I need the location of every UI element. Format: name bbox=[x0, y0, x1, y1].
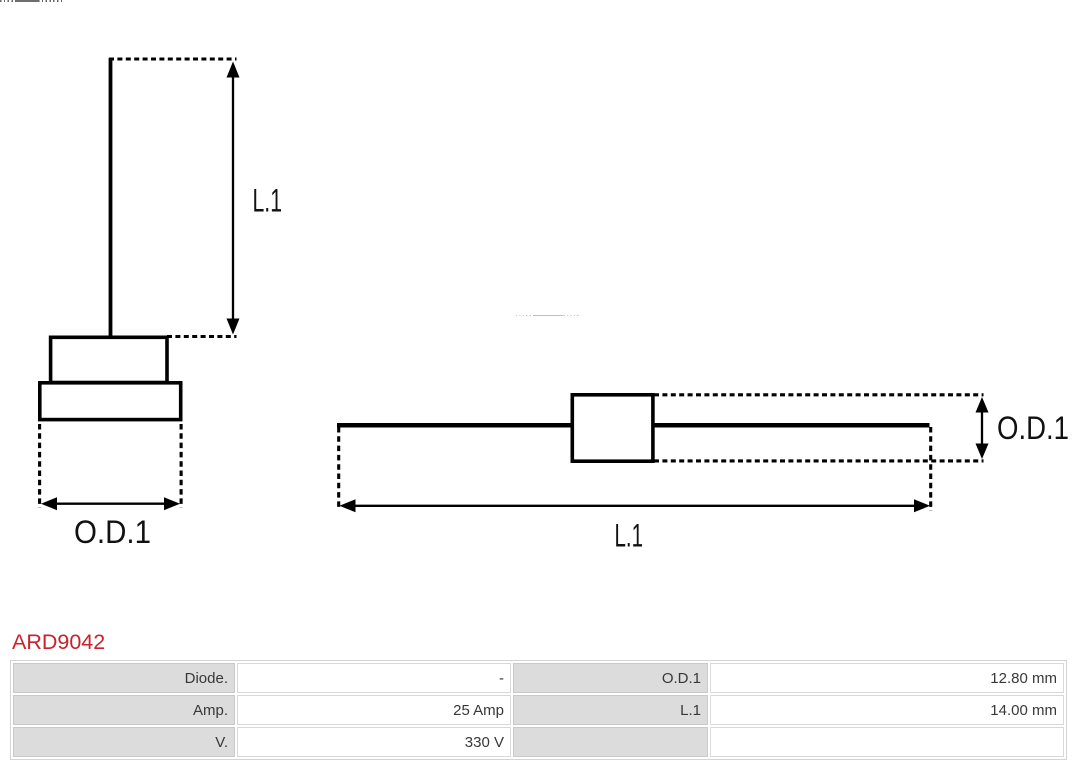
svg-text:O.D.1: O.D.1 bbox=[997, 410, 1069, 446]
svg-text:L.1: L.1 bbox=[615, 518, 644, 554]
svg-text:O.D.1: O.D.1 bbox=[74, 514, 151, 550]
svg-text:L.1: L.1 bbox=[253, 183, 283, 219]
